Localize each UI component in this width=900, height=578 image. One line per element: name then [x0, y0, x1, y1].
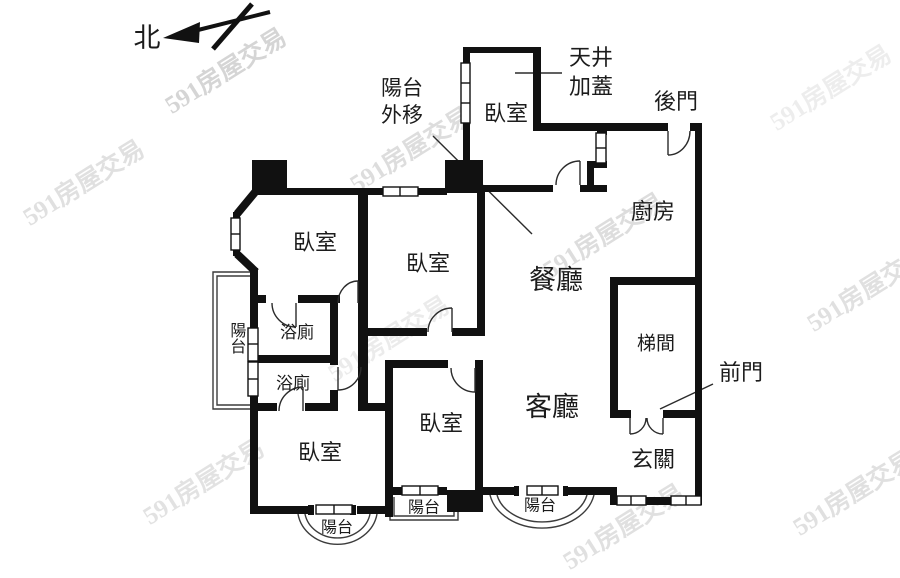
window	[617, 496, 646, 505]
wall	[393, 487, 402, 495]
wall	[438, 487, 447, 495]
window	[231, 218, 240, 250]
window	[527, 486, 558, 495]
room-label-bedroom-middle: 臥室	[406, 251, 450, 276]
room-label-stairwell: 梯間	[637, 332, 675, 354]
room-label-entrance: 玄關	[631, 447, 675, 472]
room-label-kitchen: 廚房	[631, 199, 675, 224]
wall	[477, 188, 485, 336]
wall	[305, 403, 338, 411]
wall	[418, 188, 447, 195]
room-label-bedroom-upper-left: 臥室	[293, 230, 337, 255]
watermark-text: 591房屋交易	[788, 444, 900, 541]
wall	[463, 121, 470, 162]
wall	[253, 295, 266, 303]
room-label-balcony-bottom-middle: 陽台	[408, 499, 440, 517]
wall	[308, 505, 314, 515]
window	[671, 496, 701, 505]
room-label-bedroom-top: 臥室	[484, 101, 528, 126]
bedroom-door-swing	[338, 281, 358, 303]
floor-plan-svg: 591房屋交易 591房屋交易 591房屋交易 591房屋交易 591房屋交易 …	[0, 0, 900, 578]
wall	[610, 277, 618, 418]
wall	[625, 410, 631, 418]
wall	[668, 410, 702, 418]
wall	[357, 506, 392, 514]
watermark-text: 591房屋交易	[765, 39, 897, 136]
annotation-lightwell-line1: 天井	[569, 45, 613, 70]
wall	[610, 277, 702, 285]
wall	[475, 360, 483, 512]
wall	[533, 47, 541, 127]
front-door-double-swing	[630, 418, 663, 434]
wall	[250, 506, 310, 514]
wall	[490, 487, 515, 495]
wall	[483, 487, 491, 495]
wall	[514, 486, 519, 496]
annotation-back-door: 後門	[654, 89, 698, 114]
room-label-balcony-left: 陽台	[227, 322, 245, 354]
lightwell-door-swing	[556, 161, 580, 185]
wall-diagonal	[237, 191, 256, 214]
room-label-balcony-bottom-left: 陽台	[321, 519, 353, 537]
window	[248, 328, 258, 361]
room-label-bedroom-lower-middle: 臥室	[419, 411, 463, 436]
room-label-balcony-bottom-right: 陽台	[524, 497, 556, 515]
window	[316, 505, 352, 514]
room-label-living: 客廳	[525, 392, 579, 422]
window	[461, 63, 470, 123]
room-label-dining: 餐廳	[529, 265, 583, 295]
window	[596, 133, 606, 163]
wall	[463, 47, 541, 53]
watermark-text: 591房屋交易	[18, 134, 150, 231]
wall	[580, 185, 607, 192]
watermark-text: 591房屋交易	[802, 240, 900, 337]
wall	[452, 328, 485, 336]
window	[248, 362, 258, 396]
north-label: 北	[134, 23, 161, 53]
watermark-text: 591房屋交易	[138, 433, 270, 530]
bedroom-door-swing	[451, 368, 475, 392]
floor-plan-page: 591房屋交易 591房屋交易 591房屋交易 591房屋交易 591房屋交易 …	[0, 0, 900, 578]
room-label-bath-upper: 浴廁	[280, 322, 314, 342]
wall	[695, 123, 702, 505]
wall	[298, 295, 340, 303]
north-arrow-head	[163, 22, 200, 43]
wall	[385, 360, 448, 368]
room-label-bedroom-lower-left: 臥室	[298, 440, 342, 465]
wall	[563, 486, 568, 496]
wall	[483, 185, 553, 192]
wall	[252, 355, 338, 363]
wall	[663, 123, 668, 131]
back-door-swing	[668, 131, 690, 155]
annotation-balcony-moved-line2: 外移	[381, 103, 423, 127]
wall	[358, 188, 368, 411]
wall	[610, 410, 625, 418]
wall	[565, 487, 594, 495]
annotation-balcony-moved-line1: 陽台	[381, 76, 423, 100]
annotation-lightwell-line2: 加蓋	[569, 74, 613, 99]
room-label-bath-lower: 浴廁	[276, 373, 310, 393]
window	[383, 187, 418, 196]
wall	[385, 360, 393, 517]
wall	[250, 403, 277, 411]
annotation-front-door: 前門	[719, 360, 763, 385]
labels: 臥室 陽台 外移 天井 加蓋 後門 廚房 餐廳 臥室 臥室 陽台 浴廁 浴廁 梯…	[227, 45, 763, 537]
wall	[358, 328, 427, 336]
front-door-leader-line	[660, 384, 713, 409]
window	[402, 486, 438, 495]
